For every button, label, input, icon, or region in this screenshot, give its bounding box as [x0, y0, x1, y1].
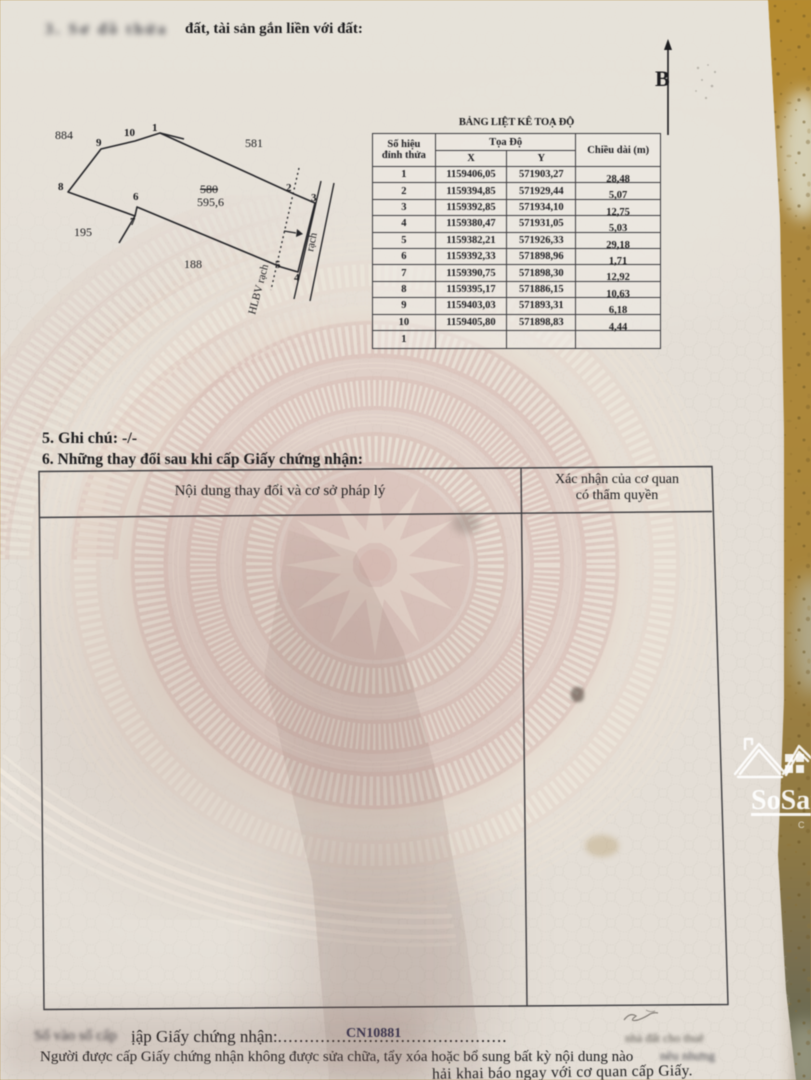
svg-text:SoSan: SoSan	[751, 785, 811, 816]
svg-text:C: C	[798, 820, 805, 830]
